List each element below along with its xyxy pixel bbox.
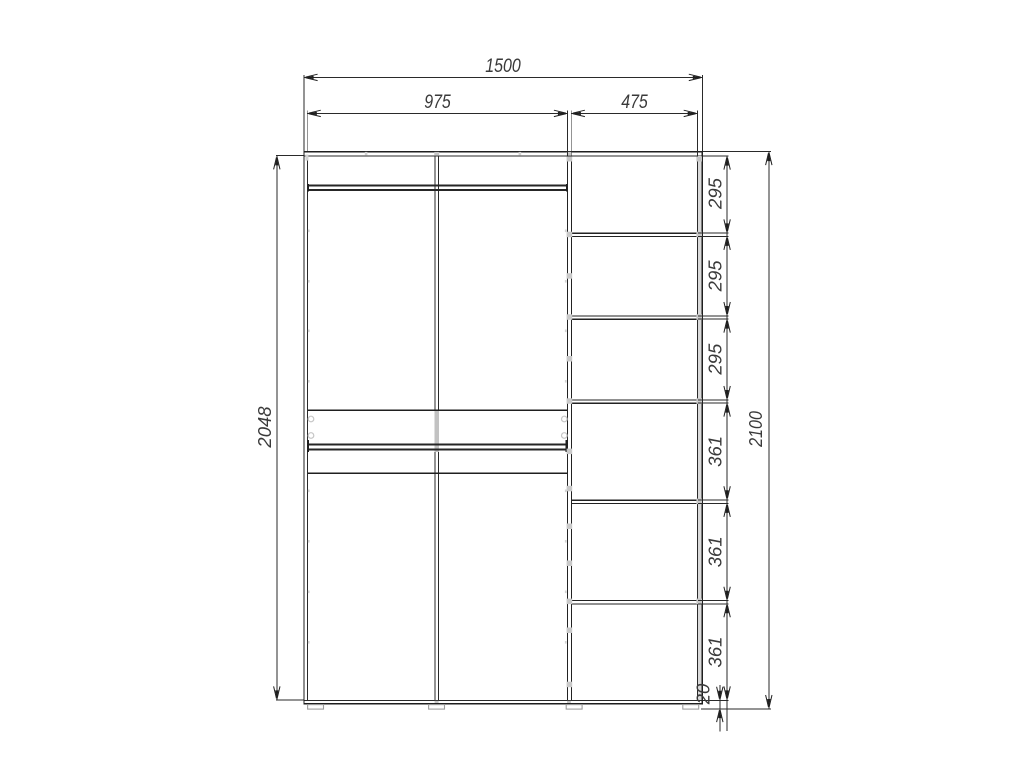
svg-text:361: 361	[705, 637, 726, 668]
svg-text:2100: 2100	[745, 411, 766, 448]
svg-text:361: 361	[705, 536, 726, 567]
svg-text:295: 295	[705, 260, 726, 293]
svg-text:975: 975	[424, 90, 451, 112]
svg-text:295: 295	[705, 343, 726, 376]
svg-text:295: 295	[705, 177, 726, 210]
svg-text:361: 361	[705, 436, 726, 467]
svg-text:1500: 1500	[485, 54, 521, 76]
svg-text:20: 20	[693, 683, 714, 705]
svg-text:2048: 2048	[254, 406, 275, 449]
svg-text:475: 475	[621, 90, 648, 112]
